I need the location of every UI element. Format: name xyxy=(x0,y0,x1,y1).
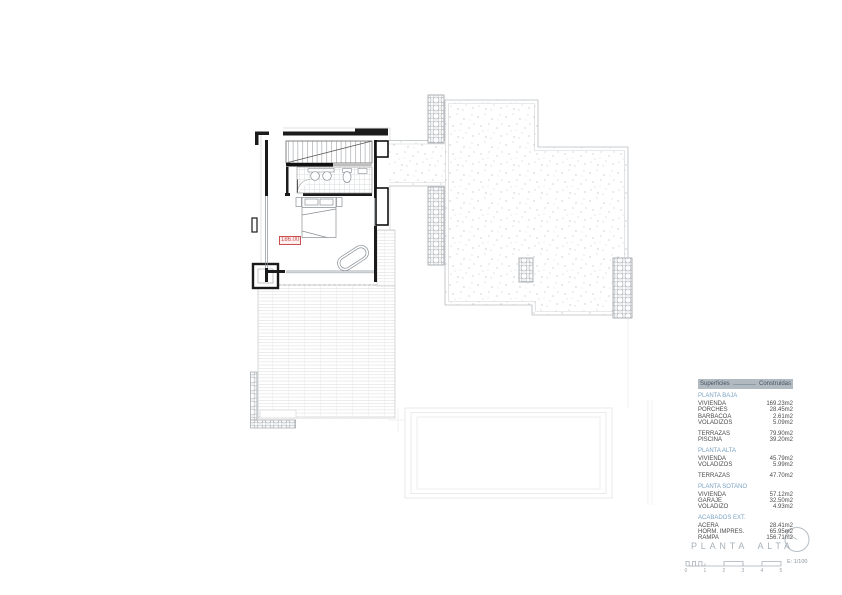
area-row: VOLADIZOS5.99m2 xyxy=(698,462,793,468)
section-title: PLANTA SOTANO xyxy=(698,484,793,491)
page-title: PLANTA ALTA xyxy=(691,541,794,551)
scale-tick-number: 3 xyxy=(742,568,745,574)
gravel-bridge xyxy=(389,141,445,187)
area-row: PISCINA39.20m2 xyxy=(698,437,793,443)
area-row: VOLADIZO4.93m2 xyxy=(698,504,793,510)
row-group: VIVIENDA57.12m2GARAJE32.50m2VOLADIZO4.93… xyxy=(698,492,793,511)
table-section: PLANTA BAJAVIVIENDA169.23m2PORCHES28.45m… xyxy=(698,393,793,444)
nightstand xyxy=(337,198,343,207)
bedroom-furniture xyxy=(296,198,371,274)
area-value: 47.70m2 xyxy=(770,473,793,479)
section-title: ACABADOS EXT. xyxy=(698,515,793,522)
area-label: TERRAZAS xyxy=(698,473,730,479)
bathtub-icon xyxy=(335,242,372,273)
level-annotation: 186.00 xyxy=(279,236,301,245)
area-row: TERRAZAS47.70m2 xyxy=(698,473,793,479)
area-row: VOLADIZOS5.09m2 xyxy=(698,420,793,426)
section-title: PLANTA BAJA xyxy=(698,393,793,400)
floorplan-sheet: 186.00 Superficies Construidas PLANTA BA… xyxy=(0,0,842,595)
area-value: 39.20m2 xyxy=(770,437,793,443)
scale-tick-number: 4 xyxy=(761,568,764,574)
section-title: PLANTA ALTA xyxy=(698,448,793,455)
table-section: ACABADOS EXT.ACERA28.41m2HORM. IMPRES.65… xyxy=(698,515,793,542)
header-construidas: Construidas xyxy=(759,381,791,387)
row-group: TERRAZAS47.70m2 xyxy=(698,473,793,479)
vanity-counter xyxy=(308,169,334,173)
area-value: 5.99m2 xyxy=(773,462,793,468)
areas-table: Superficies Construidas PLANTA BAJAVIVIE… xyxy=(698,379,793,541)
row-group: VIVIENDA45.79m2VOLADIZOS5.99m2 xyxy=(698,456,793,469)
scale-bar xyxy=(686,562,781,567)
sink-icon xyxy=(323,172,332,181)
areas-table-header: Superficies Construidas xyxy=(698,379,793,389)
area-label: VOLADIZOS xyxy=(698,420,732,426)
scale-tick-number: 1 xyxy=(704,568,707,574)
scale-tick-number: 2 xyxy=(723,568,726,574)
sink-icon xyxy=(311,172,320,181)
area-label: VOLADIZO xyxy=(698,504,728,510)
scale-tick-number: 5 xyxy=(780,568,783,574)
toilet-icon xyxy=(343,172,351,183)
pool-below-outline xyxy=(388,318,652,505)
facade-piers xyxy=(376,141,388,225)
bathroom xyxy=(297,167,372,193)
scale-text: E: 1/100 xyxy=(787,559,808,565)
row-group: VIVIENDA169.23m2PORCHES28.45m2BARBACOA2.… xyxy=(698,401,793,426)
areas-table-body: PLANTA BAJAVIVIENDA169.23m2PORCHES28.45m… xyxy=(698,393,793,541)
area-label: VOLADIZOS xyxy=(698,462,732,468)
area-value: 4.93m2 xyxy=(773,504,793,510)
header-superficies: Superficies xyxy=(700,381,730,387)
staircase xyxy=(286,141,372,167)
gravel-roof-area xyxy=(389,100,628,315)
nightstand xyxy=(296,198,302,207)
row-group: ACERA28.41m2HORM. IMPRES.65.95m2RAMPA156… xyxy=(698,523,793,542)
area-value: 5.09m2 xyxy=(773,420,793,426)
area-label: PISCINA xyxy=(698,437,722,443)
header-leader-line xyxy=(733,384,756,385)
row-group: TERRAZAS79.90m2PISCINA39.20m2 xyxy=(698,431,793,444)
table-section: PLANTA ALTAVIVIENDA45.79m2VOLADIZOS5.99m… xyxy=(698,448,793,480)
table-section: PLANTA SOTANOVIVIENDA57.12m2GARAJE32.50m… xyxy=(698,484,793,511)
scale-tick-number: 0 xyxy=(685,568,688,574)
